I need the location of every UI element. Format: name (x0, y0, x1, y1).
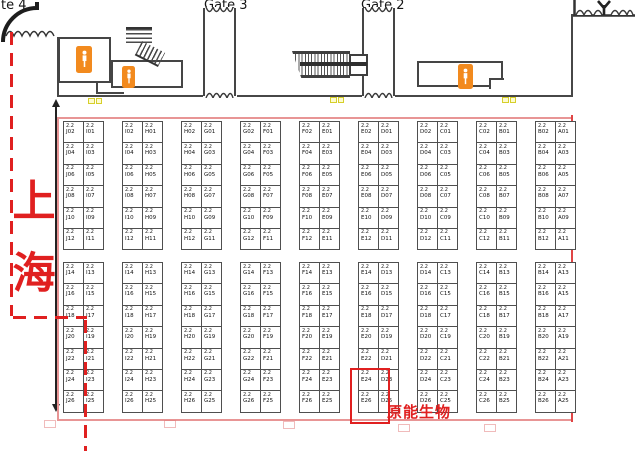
building-step-wall (96, 92, 124, 94)
booth-cell: 2.2E01 (319, 121, 340, 143)
booth-cell: 2.2G15 (201, 283, 222, 305)
booth-cell: 2.2E08 (358, 185, 379, 207)
booth-cell: 2.2A11 (555, 228, 576, 250)
booth-cell: 2.2I15 (83, 283, 104, 305)
booth-cell: 2.2H04 (181, 142, 202, 164)
booth-cell: 2.2A09 (555, 207, 576, 229)
yellow-marker-icon (502, 97, 516, 103)
booth-cell: 2.2J12 (63, 228, 84, 250)
booth-cell: 2.2E02 (358, 121, 379, 143)
booth-cell: 2.2F19 (260, 326, 281, 348)
booth-block: 2.2G022.2G042.2G062.2G082.2G102.2G122.2F… (240, 121, 282, 250)
booth-cell: 2.2C24 (476, 369, 497, 391)
pink-marker-icon (44, 420, 56, 428)
booth-cell: 2.2H09 (142, 207, 163, 229)
booth-cell: 2.2D10 (417, 207, 438, 229)
booth-cell: 2.2H21 (142, 348, 163, 370)
booth-block: 2.2G142.2G162.2G182.2G202.2G222.2G242.2G… (240, 262, 282, 413)
booth-cell: 2.2G23 (201, 369, 222, 391)
booth-cell: 2.2B26 (535, 390, 556, 412)
booth-cell: 2.2G20 (240, 326, 261, 348)
booth-cell: 2.2I01 (83, 121, 104, 143)
booth-cell: 2.2H01 (142, 121, 163, 143)
booth-cell: 2.2F21 (260, 348, 281, 370)
booth-cell: 2.2A23 (555, 369, 576, 391)
booth-cell: 2.2C12 (476, 228, 497, 250)
booth-cell: 2.2B24 (535, 369, 556, 391)
booth-cell: 2.2H11 (142, 228, 163, 250)
booth-cell: 2.2B16 (535, 283, 556, 305)
booth-cell: 2.2B14 (535, 262, 556, 284)
booth-cell: 2.2D18 (417, 305, 438, 327)
booth-cell: 2.2H17 (142, 305, 163, 327)
booth-cell: 2.2I08 (122, 185, 143, 207)
company-label: 原能生物 (387, 401, 451, 422)
booth-cell: 2.2G12 (240, 228, 261, 250)
booth-cell: 2.2C01 (437, 121, 458, 143)
booth-cell: 2.2E17 (319, 305, 340, 327)
booth-cell: 2.2E22 (358, 348, 379, 370)
booth-cell: 2.2I24 (122, 369, 143, 391)
booth-cell: 2.2H14 (181, 262, 202, 284)
booth-cell: 2.2A03 (555, 142, 576, 164)
boundary-dashed-line-left (10, 32, 13, 316)
booth-cell: 2.2G14 (240, 262, 261, 284)
booth-cell: 2.2B07 (496, 185, 517, 207)
booth-cell: 2.2D14 (417, 262, 438, 284)
booth-cell: 2.2E13 (319, 262, 340, 284)
booth-cell: 2.2H24 (181, 369, 202, 391)
booth-cell: 2.2A21 (555, 348, 576, 370)
booth-block: 2.2C022.2C042.2C062.2C082.2C102.2C122.2B… (476, 121, 518, 250)
booth-cell: 2.2D04 (417, 142, 438, 164)
boundary-dashed-line-lower (84, 320, 87, 451)
booth-cell: 2.2H03 (142, 142, 163, 164)
pink-marker-icon (398, 424, 410, 432)
booth-cell: 2.2E10 (358, 207, 379, 229)
booth-cell: 2.2D05 (378, 164, 399, 186)
booth-cell: 2.2F02 (299, 121, 320, 143)
booth-cell: 2.2B01 (496, 121, 517, 143)
booth-cell: 2.2B04 (535, 142, 556, 164)
booth-cell: 2.2B17 (496, 305, 517, 327)
booth-cell: 2.2F05 (260, 164, 281, 186)
booth-cell: 2.2B02 (535, 121, 556, 143)
booth-cell: 2.2H20 (181, 326, 202, 348)
booth-cell: 2.2H06 (181, 164, 202, 186)
top-wall-segment (395, 95, 573, 97)
booth-block: 2.2D142.2D162.2D182.2D202.2D222.2D242.2D… (417, 262, 459, 413)
booth-cell: 2.2I02 (122, 121, 143, 143)
booth-cell: 2.2A19 (555, 326, 576, 348)
booth-cell: 2.2F17 (260, 305, 281, 327)
bushes-icon (364, 89, 393, 98)
booth-cell: 2.2I06 (122, 164, 143, 186)
booth-cell: 2.2C16 (476, 283, 497, 305)
bushes-icon (205, 7, 234, 16)
booth-cell: 2.2E11 (319, 228, 340, 250)
booth-cell: 2.2B08 (535, 185, 556, 207)
booth-cell: 2.2I12 (122, 228, 143, 250)
booth-section-top: 2.2J022.2J042.2J062.2J082.2J102.2J122.2I… (63, 121, 577, 250)
booth-cell: 2.2G22 (240, 348, 261, 370)
booth-cell: 2.2A25 (555, 390, 576, 412)
booth-cell: 2.2H18 (181, 305, 202, 327)
booth-cell: 2.2E14 (358, 262, 379, 284)
booth-cell: 2.2F20 (299, 326, 320, 348)
booth-cell: 2.2G10 (240, 207, 261, 229)
booth-cell: 2.2G07 (201, 185, 222, 207)
booth-cell: 2.2I11 (83, 228, 104, 250)
booth-cell: 2.2G21 (201, 348, 222, 370)
booth-cell: 2.2I13 (83, 262, 104, 284)
booth-cell: 2.2I04 (122, 142, 143, 164)
booth-cell: 2.2G02 (240, 121, 261, 143)
booth-cell: 2.2B15 (496, 283, 517, 305)
booth-cell: 2.2C05 (437, 164, 458, 186)
booth-block: 2.2B022.2B042.2B062.2B082.2B102.2B122.2A… (535, 121, 577, 250)
booth-cell: 2.2G16 (240, 283, 261, 305)
pink-marker-icon (283, 421, 295, 429)
restroom-male-icon (458, 64, 473, 89)
booth-cell: 2.2C21 (437, 348, 458, 370)
booth-cell: 2.2J08 (63, 185, 84, 207)
region-label: 上海 (10, 166, 58, 310)
booth-cell: 2.2E06 (358, 164, 379, 186)
booth-block: 2.2C142.2C162.2C182.2C202.2C222.2C242.2C… (476, 262, 518, 413)
booth-cell: 2.2D02 (417, 121, 438, 143)
booth-cell: 2.2J06 (63, 164, 84, 186)
booth-cell: 2.2F22 (299, 348, 320, 370)
booth-block: 2.2H142.2H162.2H182.2H202.2H222.2H242.2H… (181, 262, 223, 413)
booth-cell: 2.2E21 (319, 348, 340, 370)
booth-cell: 2.2D09 (378, 207, 399, 229)
booth-cell: 2.2G09 (201, 207, 222, 229)
booth-cell: 2.2G18 (240, 305, 261, 327)
booth-cell: 2.2F07 (260, 185, 281, 207)
booth-cell: 2.2I05 (83, 164, 104, 186)
booth-cell: 2.2C02 (476, 121, 497, 143)
booth-cell: 2.2I09 (83, 207, 104, 229)
booth-cell: 2.2B18 (535, 305, 556, 327)
booth-cell: 2.2G24 (240, 369, 261, 391)
boundary-dashed-line-jog (13, 316, 87, 319)
booth-cell: 2.2D12 (417, 228, 438, 250)
booth-cell: 2.2G08 (240, 185, 261, 207)
building-notch (489, 78, 504, 89)
booth-cell: 2.2C26 (476, 390, 497, 412)
booth-cell: 2.2F18 (299, 305, 320, 327)
booth-cell: 2.2H05 (142, 164, 163, 186)
booth-cell: 2.2H26 (181, 390, 202, 412)
booth-cell: 2.2C06 (476, 164, 497, 186)
booth-cell: 2.2J26 (63, 390, 84, 412)
booth-cell: 2.2F06 (299, 164, 320, 186)
booth-cell: 2.2C20 (476, 326, 497, 348)
booth-block: 2.2H022.2H042.2H062.2H082.2H102.2H122.2G… (181, 121, 223, 250)
booth-cell: 2.2H08 (181, 185, 202, 207)
booth-cell: 2.2C15 (437, 283, 458, 305)
yellow-marker-icon (330, 97, 344, 103)
booth-cell: 2.2D20 (417, 326, 438, 348)
booth-cell: 2.2H19 (142, 326, 163, 348)
booth-cell: 2.2E12 (358, 228, 379, 250)
booth-cell: 2.2F23 (260, 369, 281, 391)
booth-cell: 2.2H02 (181, 121, 202, 143)
pink-marker-icon (484, 424, 496, 432)
pink-marker-icon (164, 420, 176, 428)
booth-cell: 2.2E23 (319, 369, 340, 391)
booth-cell: 2.2E19 (319, 326, 340, 348)
booth-cell: 2.2G04 (240, 142, 261, 164)
booth-cell: 2.2B05 (496, 164, 517, 186)
booth-cell: 2.2G19 (201, 326, 222, 348)
booth-cell: 2.2G25 (201, 390, 222, 412)
booth-cell: 2.2C19 (437, 326, 458, 348)
booth-cell: 2.2J04 (63, 142, 84, 164)
booth-cell: 2.2B13 (496, 262, 517, 284)
booth-cell: 2.2G13 (201, 262, 222, 284)
booth-cell: 2.2C04 (476, 142, 497, 164)
booth-cell: 2.2E16 (358, 283, 379, 305)
booth-cell: 2.2I20 (122, 326, 143, 348)
booth-cell: 2.2F04 (299, 142, 320, 164)
booth-cell: 2.2C13 (437, 262, 458, 284)
booth-cell: 2.2F26 (299, 390, 320, 412)
booth-block: 2.2E022.2E042.2E062.2E082.2E102.2E122.2D… (358, 121, 400, 250)
right-wall (571, 14, 573, 97)
booth-cell: 2.2J24 (63, 369, 84, 391)
booth-cell: 2.2A17 (555, 305, 576, 327)
entrance-arc-icon (0, 2, 58, 44)
booth-cell: 2.2I03 (83, 142, 104, 164)
booth-cell: 2.2J20 (63, 326, 84, 348)
booth-cell: 2.2D16 (417, 283, 438, 305)
booth-cell: 2.2F13 (260, 262, 281, 284)
booth-cell: 2.2G03 (201, 142, 222, 164)
booth-block: 2.2F022.2F042.2F062.2F082.2F102.2F122.2E… (299, 121, 341, 250)
booth-cell: 2.2A01 (555, 121, 576, 143)
booth-cell: 2.2G11 (201, 228, 222, 250)
booth-cell: 2.2D24 (417, 369, 438, 391)
yellow-marker-icon (88, 98, 102, 104)
booth-cell: 2.2C07 (437, 185, 458, 207)
booth-cell: 2.2E05 (319, 164, 340, 186)
restroom-male-icon (76, 46, 92, 73)
booth-cell: 2.2B20 (535, 326, 556, 348)
booth-cell: 2.2C17 (437, 305, 458, 327)
escalator-handrail (300, 62, 367, 66)
booth-cell: 2.2F24 (299, 369, 320, 391)
booth-cell: 2.2I16 (122, 283, 143, 305)
booth-cell: 2.2D07 (378, 185, 399, 207)
booth-block: 2.2J022.2J042.2J062.2J082.2J102.2J122.2I… (63, 121, 105, 250)
booth-cell: 2.2C18 (476, 305, 497, 327)
booth-cell: 2.2C10 (476, 207, 497, 229)
gate3-corridor (203, 8, 236, 96)
booth-block: 2.2I022.2I042.2I062.2I082.2I102.2I122.2H… (122, 121, 164, 250)
booth-cell: 2.2F11 (260, 228, 281, 250)
booth-cell: 2.2H16 (181, 283, 202, 305)
bushes-icon (364, 7, 393, 16)
booth-cell: 2.2A05 (555, 164, 576, 186)
booth-cell: 2.2B22 (535, 348, 556, 370)
booth-block: 2.2D022.2D042.2D062.2D082.2D102.2D122.2C… (417, 121, 459, 250)
highlighted-booth-outline (350, 368, 390, 424)
booth-section-bottom: 2.2J142.2J162.2J182.2J202.2J222.2J242.2J… (63, 262, 577, 413)
booth-cell: 2.2H12 (181, 228, 202, 250)
booth-cell: 2.2H07 (142, 185, 163, 207)
booth-cell: 2.2F03 (260, 142, 281, 164)
booth-cell: 2.2B03 (496, 142, 517, 164)
booth-cell: 2.2F12 (299, 228, 320, 250)
booth-cell: 2.2D06 (417, 164, 438, 186)
booth-cell: 2.2B25 (496, 390, 517, 412)
booth-cell: 2.2B11 (496, 228, 517, 250)
booth-cell: 2.2G17 (201, 305, 222, 327)
booth-cell: 2.2G05 (201, 164, 222, 186)
top-wall-segment (57, 95, 203, 97)
booth-cell: 2.2G06 (240, 164, 261, 186)
booth-cell: 2.2B21 (496, 348, 517, 370)
booth-cell: 2.2D13 (378, 262, 399, 284)
booth-cell: 2.2D01 (378, 121, 399, 143)
booth-cell: 2.2A13 (555, 262, 576, 284)
booth-cell: 2.2I22 (122, 348, 143, 370)
booth-cell: 2.2A15 (555, 283, 576, 305)
booth-cell: 2.2C08 (476, 185, 497, 207)
booth-cell: 2.2I26 (122, 390, 143, 412)
gate2-corridor (362, 8, 395, 96)
booth-cell: 2.2I07 (83, 185, 104, 207)
booth-cell: 2.2A07 (555, 185, 576, 207)
booth-cell: 2.2F16 (299, 283, 320, 305)
booth-block: 2.2B142.2B162.2B182.2B202.2B222.2B242.2B… (535, 262, 577, 413)
booth-cell: 2.2E18 (358, 305, 379, 327)
booth-cell: 2.2D11 (378, 228, 399, 250)
booth-cell: 2.2D22 (417, 348, 438, 370)
arrow-up-icon (52, 99, 60, 107)
booth-cell: 2.2F09 (260, 207, 281, 229)
booth-cell: 2.2E15 (319, 283, 340, 305)
booth-cell: 2.2F14 (299, 262, 320, 284)
booth-cell: 2.2C09 (437, 207, 458, 229)
booth-cell: 2.2C23 (437, 369, 458, 391)
booth-cell: 2.2E20 (358, 326, 379, 348)
booth-cell: 2.2E09 (319, 207, 340, 229)
booth-cell: 2.2B09 (496, 207, 517, 229)
booth-block: 2.2F142.2F162.2F182.2F202.2F222.2F242.2F… (299, 262, 341, 413)
booth-cell: 2.2D21 (378, 348, 399, 370)
booth-cell: 2.2D17 (378, 305, 399, 327)
booth-cell: 2.2H23 (142, 369, 163, 391)
booth-block: 2.2I142.2I162.2I182.2I202.2I222.2I242.2I… (122, 262, 164, 413)
booth-cell: 2.2F01 (260, 121, 281, 143)
booth-cell: 2.2D08 (417, 185, 438, 207)
booth-cell: 2.2J22 (63, 348, 84, 370)
booth-cell: 2.2H10 (181, 207, 202, 229)
booth-cell: 2.2I18 (122, 305, 143, 327)
booth-cell: 2.2E07 (319, 185, 340, 207)
booth-cell: 2.2J14 (63, 262, 84, 284)
booth-cell: 2.2E25 (319, 390, 340, 412)
booth-cell: 2.2B23 (496, 369, 517, 391)
booth-cell: 2.2F08 (299, 185, 320, 207)
booth-cell: 2.2B06 (535, 164, 556, 186)
booth-cell: 2.2I14 (122, 262, 143, 284)
booth-cell: 2.2E04 (358, 142, 379, 164)
booth-cell: 2.2C11 (437, 228, 458, 250)
booth-cell: 2.2E03 (319, 142, 340, 164)
booth-cell: 2.2B19 (496, 326, 517, 348)
exhibition-floor-plan: te 4 Gate 3 Gate 2 上海 (0, 0, 635, 453)
booth-cell: 2.2D19 (378, 326, 399, 348)
booth-cell: 2.2D03 (378, 142, 399, 164)
booth-cell: 2.2J10 (63, 207, 84, 229)
booth-cell: 2.2C03 (437, 142, 458, 164)
booth-cell: 2.2B12 (535, 228, 556, 250)
booth-cell: 2.2J02 (63, 121, 84, 143)
booth-cell: 2.2C14 (476, 262, 497, 284)
booth-cell: 2.2I10 (122, 207, 143, 229)
booth-cell: 2.2J16 (63, 283, 84, 305)
booth-cell: 2.2G26 (240, 390, 261, 412)
booth-cell: 2.2H13 (142, 262, 163, 284)
booth-cell: 2.2F15 (260, 283, 281, 305)
booth-cell: 2.2F10 (299, 207, 320, 229)
tree-icon (573, 0, 635, 17)
booth-cell: 2.2H22 (181, 348, 202, 370)
booth-cell: 2.2D15 (378, 283, 399, 305)
booth-cell: 2.2B10 (535, 207, 556, 229)
booth-cell: 2.2H25 (142, 390, 163, 412)
booth-cell: 2.2H15 (142, 283, 163, 305)
booth-cell: 2.2F25 (260, 390, 281, 412)
bushes-icon (205, 89, 234, 98)
restroom-female-icon (122, 66, 135, 88)
booth-cell: 2.2G01 (201, 121, 222, 143)
booth-cell: 2.2C22 (476, 348, 497, 370)
